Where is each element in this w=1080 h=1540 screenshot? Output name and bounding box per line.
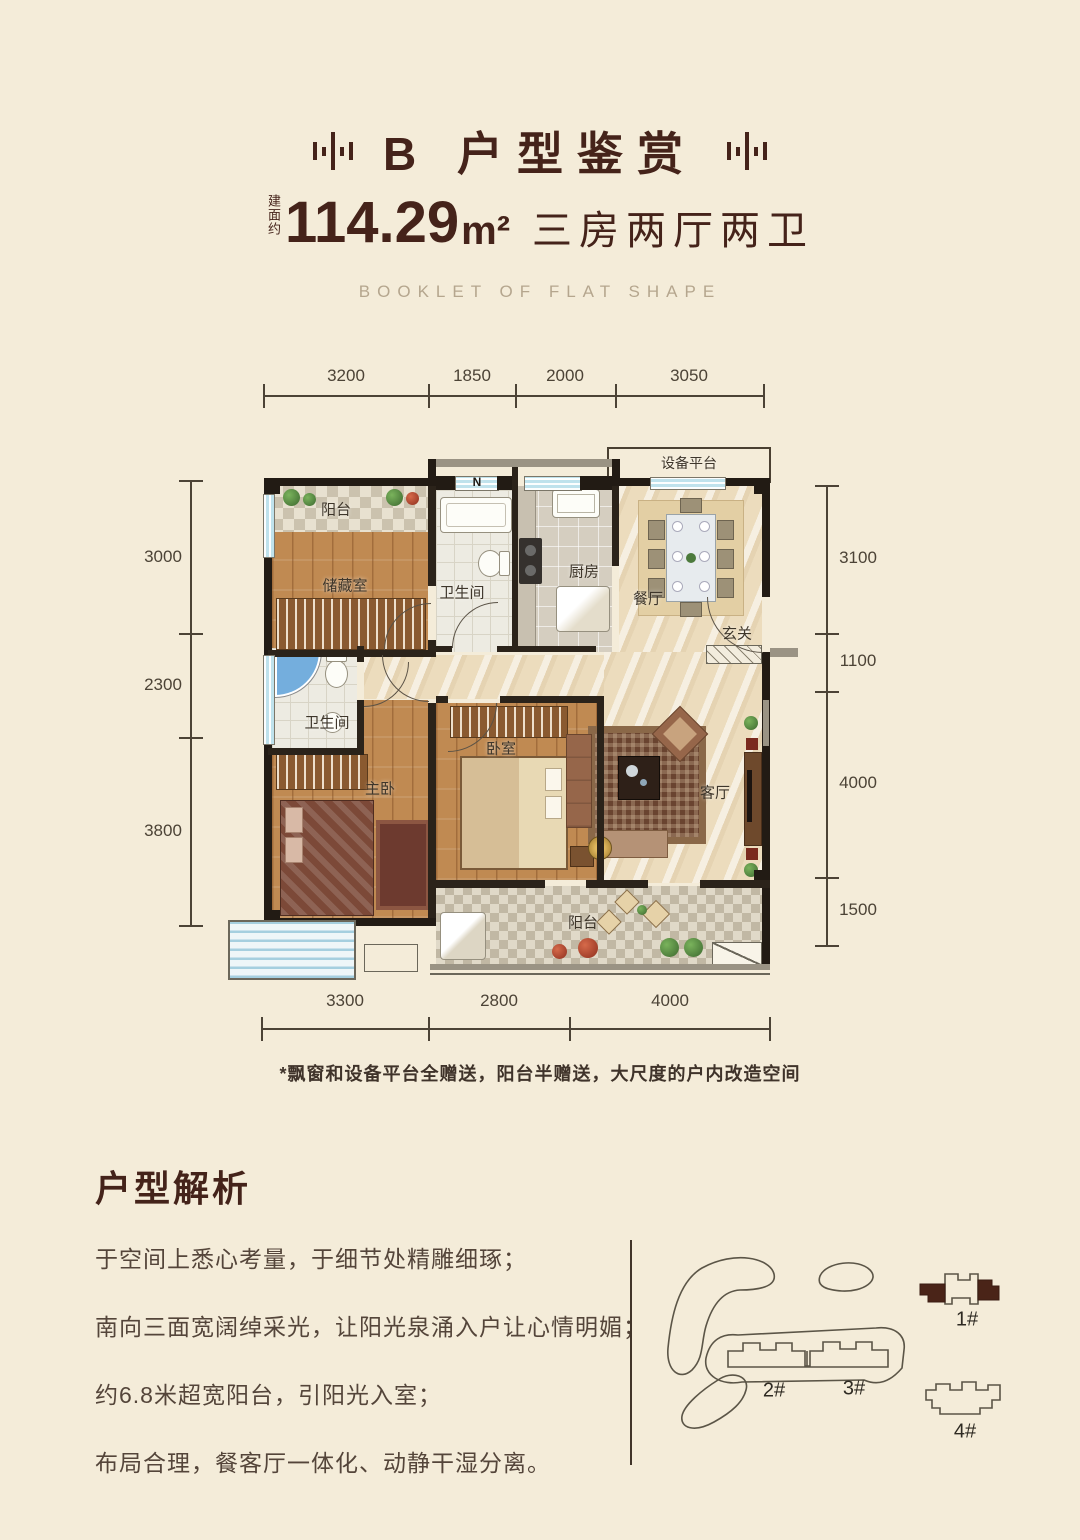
- dim-tick: [769, 1017, 771, 1041]
- toilet-tank: [499, 551, 510, 576]
- sofa: [566, 734, 592, 828]
- dim-tick: [179, 480, 203, 482]
- dim-tick: [515, 384, 517, 408]
- dining-chair: [648, 549, 665, 569]
- building-label-4: 4#: [954, 1421, 976, 1444]
- stove: [519, 538, 542, 584]
- room-label-kitchen: 厨房: [569, 561, 599, 582]
- plant-icon: [386, 489, 403, 506]
- room-label-balcony-top: 阳台: [321, 499, 351, 520]
- column: [754, 478, 770, 494]
- dining-chair: [680, 498, 702, 513]
- wall-window-rail: [763, 700, 769, 746]
- console-decor: [746, 848, 758, 860]
- dim-label: 2300: [144, 675, 182, 695]
- building-1-wing-highlight: [978, 1280, 999, 1300]
- window: [650, 477, 726, 490]
- dim-tick: [569, 1017, 571, 1041]
- wall: [580, 476, 612, 490]
- toilet-icon: [325, 660, 348, 688]
- inner-wall: [436, 696, 448, 703]
- coffee-table: [618, 756, 660, 800]
- compass-north: N: [473, 475, 482, 489]
- wall: [762, 652, 770, 886]
- wall: [436, 476, 455, 490]
- window-marker: [712, 942, 762, 966]
- dim-line-top: [263, 395, 765, 397]
- window: [263, 655, 275, 745]
- wall: [264, 478, 432, 486]
- inner-wall: [357, 646, 364, 662]
- building-2-3-outline: [728, 1342, 888, 1367]
- dim-label: 4000: [651, 991, 689, 1011]
- master-bed: [280, 800, 374, 916]
- dim-label: 2800: [480, 991, 518, 1011]
- analysis-title: 户型解析: [95, 1160, 251, 1212]
- analysis-line: 于空间上悉心考量，于细节处精雕细琢；: [95, 1240, 527, 1274]
- window: [263, 494, 275, 558]
- balcony-railing-line: [430, 973, 770, 975]
- flower-icon: [578, 938, 598, 958]
- gift-note: *飘窗和设备平台全赠送，阳台半赠送，大尺度的户内改造空间: [0, 1060, 1080, 1086]
- dim-tick: [815, 877, 839, 879]
- washing-machine: [440, 912, 486, 960]
- inner-wall: [268, 748, 364, 755]
- dim-label: 1850: [453, 366, 491, 386]
- wall: [497, 476, 512, 490]
- english-caption: BOOKLET OF FLAT SHAPE: [0, 282, 1080, 302]
- bathtub: [440, 497, 512, 533]
- landscape-blob: [668, 1258, 775, 1375]
- dining-chair: [680, 602, 702, 617]
- plant-icon: [684, 938, 703, 957]
- room-label-bedroom: 卧室: [486, 738, 516, 759]
- dim-label: 3300: [326, 991, 364, 1011]
- inner-wall: [497, 646, 596, 652]
- landscape-blob: [819, 1263, 873, 1291]
- master-rug: [376, 820, 430, 910]
- room-label-dining: 餐厅: [633, 588, 663, 609]
- wall: [762, 478, 770, 597]
- rooms-summary: 三房两厅两卫: [532, 210, 814, 252]
- inner-wall: [700, 880, 770, 888]
- building-label-2: 2#: [763, 1380, 785, 1403]
- bay-window: [228, 920, 356, 980]
- building-1-wing-highlight: [920, 1284, 945, 1302]
- dim-tick: [261, 1017, 263, 1041]
- building-4-outline: [926, 1382, 1000, 1414]
- room-label-bath-top: 卫生间: [439, 582, 484, 603]
- dim-tick: [815, 485, 839, 487]
- dim-tick: [815, 633, 839, 635]
- dining-chair: [717, 549, 734, 569]
- room-label-living-room: 客厅: [700, 782, 730, 803]
- dim-label: 2000: [546, 366, 584, 386]
- analysis-line: 南向三面宽阔绰采光，让阳光泉涌入户让心情明媚；: [95, 1308, 647, 1342]
- wall-sill: [428, 459, 620, 467]
- dim-tick: [615, 384, 617, 408]
- entry-wall-stub: [770, 648, 798, 657]
- inner-wall: [612, 486, 619, 566]
- dim-label: 3050: [670, 366, 708, 386]
- plant-icon: [744, 716, 758, 730]
- window-marker: [364, 944, 418, 972]
- plant-icon: [637, 905, 647, 915]
- inner-wall: [428, 486, 436, 586]
- room-label-equipment-platform: 设备平台: [661, 453, 717, 473]
- bedroom-bed: [460, 756, 568, 870]
- brochure-page: B 户型鉴赏 建面约 114.29 m² 三房两厅两卫 BOOKLET OF F…: [0, 0, 1080, 1540]
- building-label-3: 3#: [843, 1378, 865, 1401]
- dim-line-left: [190, 480, 192, 927]
- decor-bars-icon: [727, 132, 767, 170]
- inner-wall: [586, 880, 604, 888]
- wall: [762, 886, 770, 970]
- inner-wall: [436, 880, 545, 888]
- analysis-line: 约6.8米超宽阳台，引阳光入室；: [95, 1376, 442, 1410]
- master-wardrobe: [276, 754, 368, 790]
- inner-wall: [597, 696, 604, 886]
- area-subtitle: 建面约 114.29 m² 三房两厅两卫: [0, 194, 1080, 252]
- page-title: B 户型鉴赏: [383, 118, 697, 184]
- column: [264, 478, 280, 494]
- dim-label: 4000: [839, 773, 877, 793]
- dim-label: 1500: [839, 900, 877, 920]
- inner-wall: [512, 467, 518, 652]
- room-label-balcony-bottom: 阳台: [568, 912, 598, 933]
- inner-wall: [500, 696, 604, 703]
- area-prefix: 建面约: [266, 194, 281, 242]
- tv-screen: [747, 770, 752, 822]
- window: [524, 476, 582, 491]
- dining-table: [666, 514, 716, 602]
- flower-icon: [552, 944, 567, 959]
- area-unit: m²: [461, 210, 510, 252]
- area-value: 114.29: [285, 194, 459, 252]
- plant-icon: [660, 938, 679, 957]
- section-divider: [630, 1240, 632, 1465]
- dim-tick: [179, 737, 203, 739]
- dim-tick: [428, 1017, 430, 1041]
- console-decor: [746, 738, 758, 750]
- flower-icon: [406, 492, 419, 505]
- dim-label: 3200: [327, 366, 365, 386]
- room-label-master-bedroom: 主卧: [365, 778, 395, 799]
- balcony-railing: [430, 964, 770, 970]
- inner-wall: [357, 700, 364, 754]
- title-row: B 户型鉴赏: [0, 118, 1080, 184]
- plant-icon: [283, 489, 300, 506]
- dim-label: 3000: [144, 547, 182, 567]
- building-1-outline: [945, 1274, 978, 1304]
- wall: [428, 459, 436, 486]
- dim-label: 3800: [144, 821, 182, 841]
- decor-bars-icon: [313, 132, 353, 170]
- dim-tick: [263, 384, 265, 408]
- building-label-1: 1#: [956, 1309, 978, 1332]
- plant-icon: [303, 493, 316, 506]
- bench-sofa: [602, 830, 668, 858]
- dim-label: 1100: [840, 651, 877, 671]
- dim-tick: [179, 925, 203, 927]
- inner-wall: [436, 646, 452, 652]
- dim-tick: [815, 691, 839, 693]
- dim-tick: [815, 945, 839, 947]
- room-label-entry: 玄关: [722, 623, 752, 644]
- dining-chair: [648, 520, 665, 540]
- dim-line-bottom: [261, 1028, 771, 1030]
- kitchen-sink: [552, 489, 600, 518]
- analysis-line: 布局合理，餐客厅一体化、动静干湿分离。: [95, 1444, 551, 1478]
- fridge: [556, 586, 610, 632]
- inner-wall: [604, 880, 648, 888]
- site-plan-map: [640, 1230, 1060, 1510]
- dim-tick: [179, 633, 203, 635]
- inner-wall: [428, 703, 436, 918]
- dining-chair: [717, 520, 734, 540]
- room-label-storage: 储藏室: [322, 575, 367, 596]
- dining-chair: [717, 578, 734, 598]
- dim-tick: [428, 384, 430, 408]
- room-label-bath-mid: 卫生间: [304, 712, 349, 733]
- dim-label: 3100: [839, 548, 877, 568]
- dim-tick: [763, 384, 765, 408]
